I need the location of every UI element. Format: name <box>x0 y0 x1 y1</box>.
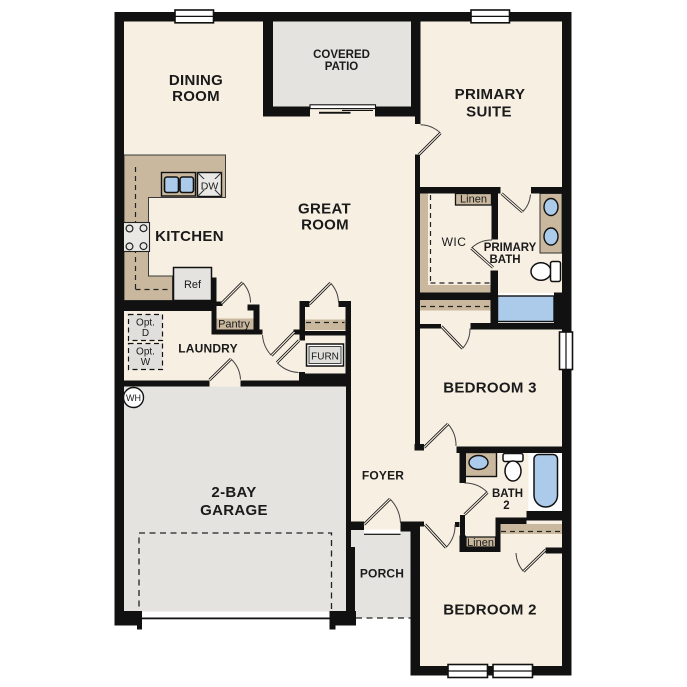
svg-text:FURN: FURN <box>311 352 339 363</box>
svg-text:PORCH: PORCH <box>360 567 404 581</box>
svg-text:W: W <box>141 357 151 368</box>
svg-text:WIC: WIC <box>442 235 467 249</box>
svg-text:WH: WH <box>126 393 141 403</box>
svg-text:DW: DW <box>201 181 219 193</box>
svg-text:BATH: BATH <box>492 488 523 500</box>
svg-text:ROOM: ROOM <box>172 88 220 105</box>
svg-text:FOYER: FOYER <box>362 469 404 483</box>
svg-text:Ref: Ref <box>184 279 202 291</box>
svg-text:BEDROOM 3: BEDROOM 3 <box>443 380 537 397</box>
svg-text:Pantry: Pantry <box>218 319 250 331</box>
svg-text:BEDROOM 2: BEDROOM 2 <box>443 602 537 619</box>
svg-text:DINING: DINING <box>169 72 223 89</box>
svg-text:SUITE: SUITE <box>466 104 512 121</box>
svg-text:Linen: Linen <box>460 194 487 206</box>
svg-text:2-BAY: 2-BAY <box>211 484 256 501</box>
svg-text:D: D <box>142 328 149 339</box>
svg-text:GARAGE: GARAGE <box>200 502 268 519</box>
svg-text:KITCHEN: KITCHEN <box>155 228 224 245</box>
svg-text:Opt.: Opt. <box>136 318 155 329</box>
svg-text:PATIO: PATIO <box>325 61 358 73</box>
svg-text:COVERED: COVERED <box>313 49 370 61</box>
svg-text:LAUNDRY: LAUNDRY <box>178 342 238 356</box>
svg-text:GREAT: GREAT <box>298 201 351 218</box>
svg-text:PRIMARY: PRIMARY <box>455 86 526 103</box>
svg-text:ROOM: ROOM <box>301 217 349 234</box>
svg-text:BATH: BATH <box>489 254 520 266</box>
svg-text:2: 2 <box>503 500 509 512</box>
svg-text:Opt.: Opt. <box>136 347 155 358</box>
svg-text:PRIMARY: PRIMARY <box>484 242 537 254</box>
